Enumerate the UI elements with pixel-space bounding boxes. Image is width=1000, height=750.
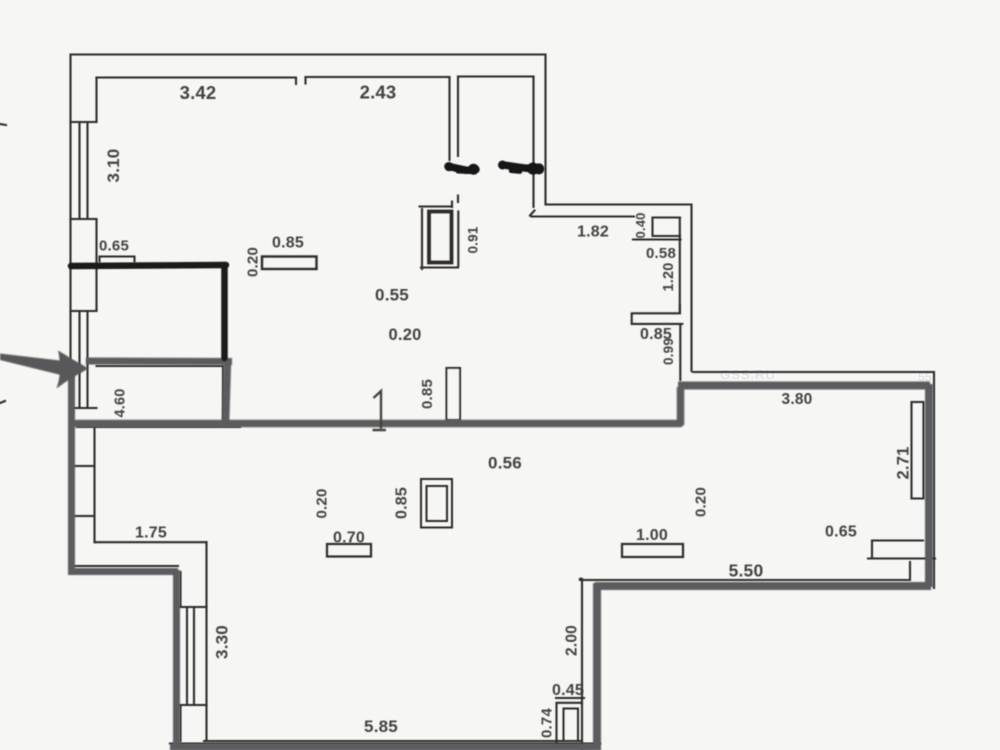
svg-text:0.58: 0.58 [646, 245, 676, 262]
svg-text:0.45: 0.45 [552, 682, 584, 699]
svg-text:3.80: 3.80 [782, 391, 813, 408]
svg-text:0.91: 0.91 [466, 226, 481, 253]
svg-text:3.10: 3.10 [104, 149, 123, 183]
svg-text:5.50: 5.50 [729, 561, 764, 581]
svg-text:0.20: 0.20 [245, 247, 262, 277]
svg-text:0.85: 0.85 [394, 487, 411, 519]
svg-text:2.43: 2.43 [360, 82, 397, 103]
svg-text:0.20: 0.20 [389, 326, 422, 344]
svg-text:1.20: 1.20 [661, 262, 677, 291]
svg-text:3.42: 3.42 [180, 82, 217, 103]
svg-text:0.70: 0.70 [333, 530, 365, 547]
svg-text:0.65: 0.65 [825, 524, 857, 541]
svg-text:0.40: 0.40 [633, 212, 648, 238]
svg-text:0.55: 0.55 [375, 286, 409, 305]
svg-text:0.65: 0.65 [99, 238, 129, 255]
svg-text:0.56: 0.56 [488, 454, 522, 473]
svg-text:1.75: 1.75 [135, 525, 167, 542]
svg-text:0.85: 0.85 [272, 235, 304, 252]
svg-text:2.00: 2.00 [564, 625, 581, 656]
svg-text:2.71: 2.71 [895, 447, 913, 480]
svg-text:0.99: 0.99 [661, 338, 676, 365]
svg-text:0.85: 0.85 [419, 379, 436, 409]
svg-text:4.60: 4.60 [113, 388, 129, 417]
svg-text:5.85: 5.85 [364, 717, 398, 736]
svg-text:0.74: 0.74 [539, 708, 556, 738]
svg-text:0.20: 0.20 [314, 489, 331, 519]
svg-text:1.00: 1.00 [636, 527, 668, 544]
svg-text:1.82: 1.82 [577, 224, 609, 241]
svg-text:GSS.RU: GSS.RU [720, 367, 776, 382]
svg-text:0.20: 0.20 [693, 487, 710, 517]
svg-text:3.30: 3.30 [213, 625, 232, 659]
